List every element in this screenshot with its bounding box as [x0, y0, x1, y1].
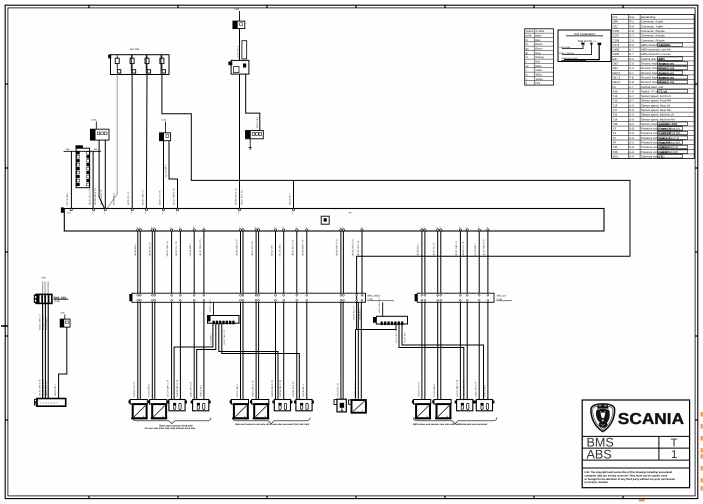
svg-text:16412 W-1: 16412 W-1 — [483, 384, 486, 397]
svg-text:C406: C406 — [613, 52, 620, 56]
svg-text:Sensor speed, Front RH: Sensor speed, Front RH — [641, 99, 671, 103]
svg-text:Italic = Group: Italic = Group — [560, 52, 575, 55]
svg-text:Front LH: Front LH — [659, 127, 671, 131]
svg-text:16234 GN-0.75: 16234 GN-0.75 — [235, 239, 238, 257]
svg-text:ABS_SX: ABS_SX — [497, 295, 507, 298]
svg-text:Brown: Brown — [535, 43, 543, 46]
svg-text:T14: T14 — [613, 94, 618, 98]
svg-text:31102 BR-1: 31102 BR-1 — [210, 333, 213, 345]
svg-text:ABS valves and sensors rear ax: ABS valves and sensors rear axle with ad… — [413, 423, 488, 426]
svg-text:C-7: C-7 — [629, 71, 634, 75]
svg-text:16521 BL-0.75: 16521 BL-0.75 — [292, 239, 295, 256]
svg-text:Y4: Y4 — [613, 131, 617, 135]
svg-text:16037 R-1.5: 16037 R-1.5 — [236, 45, 239, 58]
svg-text:30021 SB-1.5: 30021 SB-1.5 — [38, 314, 41, 330]
svg-text:16034 GR-0.75: 16034 GR-0.75 — [279, 379, 282, 397]
svg-text:D-5: D-5 — [629, 141, 634, 145]
svg-text:D-5: D-5 — [629, 103, 634, 107]
svg-text:D-9: D-9 — [629, 117, 634, 121]
svg-text:G44: G44 — [613, 66, 619, 70]
svg-text:16036 BL-1: 16036 BL-1 — [417, 243, 420, 257]
svg-text:16037 R-1.5: 16037 R-1.5 — [433, 242, 436, 257]
svg-text:16233 Y-0.75: 16233 Y-0.75 — [209, 299, 212, 313]
svg-text:2: 2 — [306, 408, 307, 411]
svg-text:2: 2 — [467, 408, 468, 411]
svg-text:w: w — [526, 73, 528, 76]
svg-text:gr: gr — [526, 52, 528, 55]
svg-text:Switch, TC off: Switch, TC off — [641, 89, 659, 93]
svg-text:C-7: C-7 — [629, 34, 634, 38]
svg-text:16233 Y-0.75: 16233 Y-0.75 — [133, 381, 136, 397]
svg-text:G47,2: G47,2 — [613, 75, 621, 79]
svg-text:16233 Y-0.75: 16233 Y-0.75 — [159, 190, 162, 206]
svg-text:1: 1 — [481, 408, 482, 411]
svg-text:16411 R-0.75: 16411 R-0.75 — [395, 329, 398, 343]
svg-text:G-9: G-9 — [629, 24, 634, 28]
svg-text:16035 W-0.75: 16035 W-0.75 — [292, 381, 295, 397]
svg-text:G43: G43 — [613, 62, 619, 66]
svg-text:31102 BR-1: 31102 BR-1 — [189, 243, 192, 257]
svg-text:Unit explanation: Unit explanation — [574, 32, 596, 36]
svg-text:torpedo wa: torpedo wa — [659, 71, 674, 75]
svg-text:or: or — [526, 56, 528, 59]
svg-text:0: 0 — [137, 226, 138, 229]
svg-text:Valve and sensors front axle: Valve and sensors front axle — [159, 424, 193, 427]
svg-text:3: 3 — [162, 212, 163, 215]
svg-text:T16: T16 — [613, 103, 618, 107]
svg-text:G-1: G-1 — [629, 20, 634, 24]
svg-text:C405: C405 — [234, 8, 240, 11]
svg-text:Connector, 66-pole: Connector, 66-pole — [641, 29, 665, 33]
svg-text:1: 1 — [342, 226, 343, 229]
svg-text:D-9: D-9 — [629, 108, 634, 112]
svg-text:16412 W-1: 16412 W-1 — [289, 193, 292, 206]
svg-text:30021 SB-1.5: 30021 SB-1.5 — [166, 240, 169, 256]
svg-text:31102 BR-1: 31102 BR-1 — [148, 383, 151, 397]
svg-text:6: 6 — [274, 226, 275, 229]
svg-text:P2: P2 — [613, 85, 617, 89]
svg-text:G44,P: G44,P — [613, 80, 621, 84]
svg-text:Sec 30a: Sec 30a — [130, 48, 140, 51]
svg-text:(Y28): (Y28) — [497, 298, 503, 301]
svg-text:Black: Black — [535, 65, 542, 68]
svg-text:16411 R-0.75: 16411 R-0.75 — [251, 241, 254, 257]
svg-text:7: 7 — [242, 226, 243, 229]
svg-text:9: 9 — [459, 226, 460, 229]
svg-text:W21: W21 — [613, 154, 619, 158]
svg-text:31102 BR-1: 31102 BR-1 — [45, 316, 48, 330]
svg-text:Blue: Blue — [535, 39, 541, 42]
svg-text:(reference text): (reference text) — [562, 57, 578, 60]
svg-text:of cable: of cable — [535, 30, 545, 33]
svg-text:C-9: C-9 — [629, 38, 634, 42]
svg-text:TC off: TC off — [659, 89, 667, 93]
svg-text:16036 BL-1: 16036 BL-1 — [112, 192, 115, 206]
svg-text:30115 SB-1: 30115 SB-1 — [256, 116, 259, 129]
svg-text:1: 1 — [70, 212, 71, 215]
svg-text:F-7: F-7 — [629, 85, 634, 89]
svg-text:3: 3 — [92, 212, 93, 215]
svg-text:Y36: Y36 — [613, 150, 618, 154]
svg-text:7: 7 — [176, 212, 177, 215]
svg-text:5: 5 — [179, 226, 180, 229]
svg-text:Add LH: Add LH — [659, 145, 669, 149]
svg-text:16412 W-1: 16412 W-1 — [270, 244, 273, 257]
svg-text:T26: T26 — [613, 117, 618, 121]
svg-text:Sensor speed, Add b/w LH: Sensor speed, Add b/w LH — [641, 113, 674, 117]
svg-text:16234 GN-0.75: 16234 GN-0.75 — [378, 297, 381, 313]
svg-text:chassis rea: chassis rea — [659, 66, 675, 70]
svg-text:F-9: F-9 — [629, 89, 634, 93]
svg-text:T: T — [671, 437, 678, 449]
svg-text:Front RH: Front RH — [659, 131, 671, 135]
svg-text:16034 GR-0.75: 16034 GR-0.75 — [94, 188, 97, 206]
svg-text:1: 1 — [671, 449, 677, 461]
svg-text:16036 BL-1: 16036 BL-1 — [302, 383, 305, 397]
svg-text:chassis rea: chassis rea — [659, 80, 675, 84]
svg-text:16412 W-1: 16412 W-1 — [199, 384, 202, 397]
svg-text:16036 BL-1: 16036 BL-1 — [134, 243, 137, 257]
svg-text:1: 1 — [174, 408, 175, 411]
svg-text:E-7: E-7 — [629, 52, 634, 56]
svg-text:Matl std /20 • 1: Matl std /20 • 1 — [578, 40, 596, 43]
svg-text:White: White — [535, 73, 542, 76]
svg-text:D-8: D-8 — [629, 145, 634, 149]
svg-text:BMS_ABS2: BMS_ABS2 — [368, 295, 381, 298]
svg-text:SCANIA: SCANIA — [618, 411, 684, 428]
svg-text:8: 8 — [487, 226, 488, 229]
svg-text:0: 0 — [424, 226, 425, 229]
svg-text:30115 SB-1: 30115 SB-1 — [66, 192, 69, 206]
svg-text:16412 W-1: 16412 W-1 — [54, 384, 57, 397]
svg-text:Orange: Orange — [535, 56, 544, 59]
svg-text:Y5: Y5 — [613, 136, 617, 140]
svg-text:16412 W-1: 16412 W-1 — [404, 331, 407, 343]
svg-text:1: 1 — [197, 408, 198, 411]
svg-text:8: 8 — [193, 226, 194, 229]
svg-text:(c) Scania, Sweden: (c) Scania, Sweden — [585, 481, 609, 484]
svg-text:T17: T17 — [613, 108, 618, 112]
svg-text:2: 2 — [285, 408, 286, 411]
svg-text:Black: Black — [535, 35, 542, 38]
svg-text:Green: Green — [535, 48, 543, 51]
svg-text:Grey: Grey — [535, 52, 541, 55]
svg-text:Y35: Y35 — [613, 145, 618, 149]
svg-text:5: 5 — [478, 226, 479, 229]
svg-text:9: 9 — [282, 226, 283, 229]
svg-text:16037 R-1.5: 16037 R-1.5 — [336, 382, 339, 397]
svg-text:2: 2 — [131, 212, 132, 215]
svg-text:D-8: D-8 — [629, 127, 634, 131]
svg-text:C-8: C-8 — [629, 29, 634, 33]
svg-text:Connector, Trailer: Connector, Trailer — [641, 24, 663, 28]
svg-text:Y3: Y3 — [613, 127, 617, 131]
svg-text:5: 5 — [104, 212, 105, 215]
svg-text:31102 BR-1: 31102 BR-1 — [474, 243, 477, 257]
svg-text:Y6: Y6 — [613, 141, 617, 145]
svg-text:16137 OR-0.75: 16137 OR-0.75 — [199, 239, 202, 257]
svg-text:C-5: C-5 — [629, 62, 634, 66]
svg-text:ABS-connector, reverse: ABS-connector, reverse — [641, 52, 671, 56]
svg-text:T25: T25 — [613, 113, 618, 117]
svg-text:C88: C88 — [613, 20, 619, 24]
svg-text:16234 GN-0.75: 16234 GN-0.75 — [351, 239, 354, 257]
svg-text:15A: 15A — [94, 148, 98, 151]
svg-text:31102 BR-1: 31102 BR-1 — [165, 164, 168, 178]
svg-text:D-5: D-5 — [629, 57, 634, 61]
svg-text:C112: C112 — [161, 119, 167, 122]
svg-text:Yellow: Yellow — [535, 78, 543, 81]
svg-text:30115 SB-1: 30115 SB-1 — [279, 243, 282, 257]
svg-text:9: 9 — [154, 226, 155, 229]
svg-text:bak b/w: bak b/w — [659, 43, 670, 47]
svg-text:C-8: C-8 — [629, 80, 634, 84]
svg-text:3: 3 — [292, 212, 293, 215]
svg-text:Sensor speed, Rear RH: Sensor speed, Rear RH — [641, 108, 671, 112]
svg-text:2: 2 — [487, 408, 488, 411]
svg-text:3: 3 — [257, 226, 258, 229]
svg-text:15A: 15A — [66, 148, 70, 151]
svg-text:1: 1 — [279, 408, 280, 411]
svg-text:Pink: Pink — [535, 82, 541, 85]
svg-text:2: 2 — [296, 226, 297, 229]
svg-text:16137 OR-0.75: 16137 OR-0.75 — [173, 188, 176, 206]
svg-text:C92: C92 — [42, 277, 47, 280]
svg-text:16137 OR-0.75: 16137 OR-0.75 — [167, 379, 170, 397]
svg-text:r: r — [526, 60, 527, 63]
svg-text:16234 GN-0.75: 16234 GN-0.75 — [463, 379, 466, 397]
svg-text:8: 8 — [340, 226, 341, 229]
svg-text:16037 R-1.5: 16037 R-1.5 — [127, 191, 130, 206]
svg-text:torpedo wa: torpedo wa — [659, 75, 674, 79]
svg-text:4: 4 — [239, 226, 240, 229]
svg-text:D-7: D-7 — [629, 94, 634, 98]
svg-text:Red: Red — [535, 60, 540, 63]
svg-text:ABS: ABS — [587, 447, 612, 461]
svg-text:Central warn. unit: Central warn. unit — [641, 85, 663, 89]
svg-text:C92: C92 — [613, 24, 619, 28]
svg-text:D-7: D-7 — [629, 99, 634, 103]
svg-text:Sensor speed, Add b/w RH: Sensor speed, Add b/w RH — [641, 117, 675, 121]
svg-text:tr: tr — [526, 82, 528, 85]
svg-text:16137 OR-0.75: 16137 OR-0.75 — [223, 329, 226, 345]
svg-text:16233 Y-0.75: 16233 Y-0.75 — [462, 241, 465, 257]
svg-text:G-4: G-4 — [629, 122, 634, 126]
svg-text:16522 BR-0.75: 16522 BR-0.75 — [271, 379, 274, 397]
svg-text:2: 2 — [179, 408, 180, 411]
svg-text:Connector, 24-pole: Connector, 24-pole — [641, 34, 665, 38]
svg-text:Violet: Violet — [535, 69, 542, 72]
svg-text:C107: C107 — [613, 34, 620, 38]
svg-text:7: 7 — [421, 226, 422, 229]
svg-text:16521 BL-0.75: 16521 BL-0.75 — [89, 188, 92, 205]
svg-text:16035 W-0.75: 16035 W-0.75 — [100, 189, 103, 205]
svg-text:E-7: E-7 — [629, 48, 634, 52]
svg-text:16035 W-0.75: 16035 W-0.75 — [357, 240, 360, 256]
svg-text:4: 4 — [361, 226, 362, 229]
svg-text:D-9: D-9 — [629, 154, 634, 158]
svg-text:E37: E37 — [613, 57, 618, 61]
svg-text:D-2: D-2 — [629, 150, 634, 154]
svg-text:16522 BR-0.75: 16522 BR-0.75 — [302, 239, 305, 257]
svg-text:(Y28): (Y28) — [54, 300, 60, 303]
svg-text:C173: C173 — [613, 43, 620, 47]
svg-text:T15: T15 — [613, 99, 618, 103]
svg-text:G43,5: G43,5 — [613, 71, 621, 75]
svg-text:pressure EBS: pressure EBS — [659, 122, 677, 126]
svg-text:br: br — [526, 43, 528, 46]
svg-text:16411 R-0.75: 16411 R-0.75 — [475, 381, 478, 397]
svg-text:16521 BL-0.75: 16521 BL-0.75 — [252, 380, 255, 397]
svg-text:3: 3 — [436, 226, 437, 229]
svg-text:for rear axle drive (4x2, 6x2): for rear axle drive (4x2, 6x2) without d… — [145, 427, 196, 430]
svg-text:ABS-connector, vert left: ABS-connector, vert left — [641, 48, 671, 52]
svg-text:16234 GN-0.75: 16234 GN-0.75 — [42, 379, 45, 397]
svg-text:C405: C405 — [613, 48, 620, 52]
svg-text:C105: C105 — [613, 29, 620, 33]
svg-text:16034 GR-0.75: 16034 GR-0.75 — [336, 239, 339, 257]
svg-text:Valve and sensors rear axle, d: Valve and sensors rear axle, drive axle … — [235, 423, 310, 426]
svg-text:30021 SB-1.5: 30021 SB-1.5 — [455, 240, 458, 256]
svg-text:16234 GN-0.75: 16234 GN-0.75 — [235, 188, 238, 206]
svg-text:6: 6 — [151, 226, 152, 229]
svg-text:Connector, 66-pole: Connector, 66-pole — [641, 38, 665, 42]
svg-text:C108: C108 — [613, 38, 620, 42]
svg-text:Benämning: Benämning — [641, 15, 656, 19]
svg-text:16233 Y-0.75: 16233 Y-0.75 — [417, 381, 420, 397]
svg-text:Sensor speed, Front LH: Sensor speed, Front LH — [641, 94, 671, 98]
svg-text:16233 Y-0.75: 16233 Y-0.75 — [42, 314, 45, 330]
svg-text:Add RH: Add RH — [659, 150, 669, 154]
svg-text:16411 R-0.75: 16411 R-0.75 — [241, 190, 244, 206]
svg-text:Unit name: Unit name — [560, 46, 572, 49]
svg-text:16234 GN-0.75: 16234 GN-0.75 — [176, 379, 179, 397]
svg-text:1: 1 — [461, 408, 462, 411]
svg-text:1: 1 — [301, 408, 302, 411]
svg-text:C126: C126 — [91, 119, 97, 122]
svg-text:D-9: D-9 — [629, 136, 634, 140]
svg-text:C-4: C-4 — [629, 66, 634, 70]
svg-text:16035 W-0.75: 16035 W-0.75 — [352, 305, 355, 320]
svg-text:6: 6 — [440, 226, 441, 229]
svg-text:16137 OR-0.75: 16137 OR-0.75 — [456, 379, 459, 397]
svg-text:30115 SB-1: 30115 SB-1 — [236, 383, 239, 397]
svg-text:16233 Y-0.75: 16233 Y-0.75 — [175, 241, 178, 257]
svg-text:sv/bk: sv/bk — [526, 35, 533, 38]
svg-text:(Y28): (Y28) — [368, 298, 374, 301]
svg-text:Sensor speed, Rear LH: Sensor speed, Rear LH — [641, 103, 670, 107]
svg-text:2: 2 — [203, 408, 204, 411]
svg-text:16411 R-0.75: 16411 R-0.75 — [45, 381, 48, 397]
svg-text:16137 OR-0.75: 16137 OR-0.75 — [483, 239, 486, 257]
svg-text:2: 2 — [170, 226, 171, 229]
svg-text:ABS: ABS — [659, 57, 665, 61]
svg-text:torpedo wa: torpedo wa — [659, 62, 674, 66]
svg-text:D-9: D-9 — [629, 131, 634, 135]
svg-text:16036 BL-1: 16036 BL-1 — [358, 308, 361, 320]
svg-text:D-4: D-4 — [629, 113, 634, 117]
svg-text:E-5: E-5 — [629, 43, 634, 47]
svg-text:Pos: Pos — [629, 15, 634, 19]
svg-text:5: 5 — [306, 226, 307, 229]
svg-text:16411 R-0.75: 16411 R-0.75 — [190, 381, 193, 397]
svg-text:T30: T30 — [613, 122, 618, 126]
svg-text:Colour: Colour — [526, 30, 534, 33]
svg-text:16037 R-1.5: 16037 R-1.5 — [149, 242, 152, 257]
svg-text:Connector, 9-pole: Connector, 9-pole — [641, 20, 664, 24]
svg-text:Pos: Pos — [613, 15, 618, 19]
svg-text:Rear RH: Rear RH — [659, 141, 670, 145]
svg-text:F-8: F-8 — [629, 75, 634, 79]
svg-text:9: 9 — [238, 212, 239, 215]
svg-text:30021 SB-1.5: 30021 SB-1.5 — [141, 189, 144, 205]
svg-text:0: 0 — [255, 226, 256, 229]
svg-text:S49: S49 — [613, 89, 618, 93]
svg-text:16137 OR-0.75: 16137 OR-0.75 — [38, 379, 41, 397]
svg-text:2: 2 — [466, 226, 467, 229]
svg-text:1: 1 — [203, 226, 204, 229]
svg-text:3: 3 — [139, 226, 140, 229]
svg-text:1234567: 1234567 — [40, 402, 59, 405]
svg-text:TC: TC — [659, 154, 663, 158]
svg-text:Rear LH: Rear LH — [659, 136, 670, 140]
svg-text:31102 BR-1: 31102 BR-1 — [433, 383, 436, 397]
svg-text:6: 6 — [145, 212, 146, 215]
